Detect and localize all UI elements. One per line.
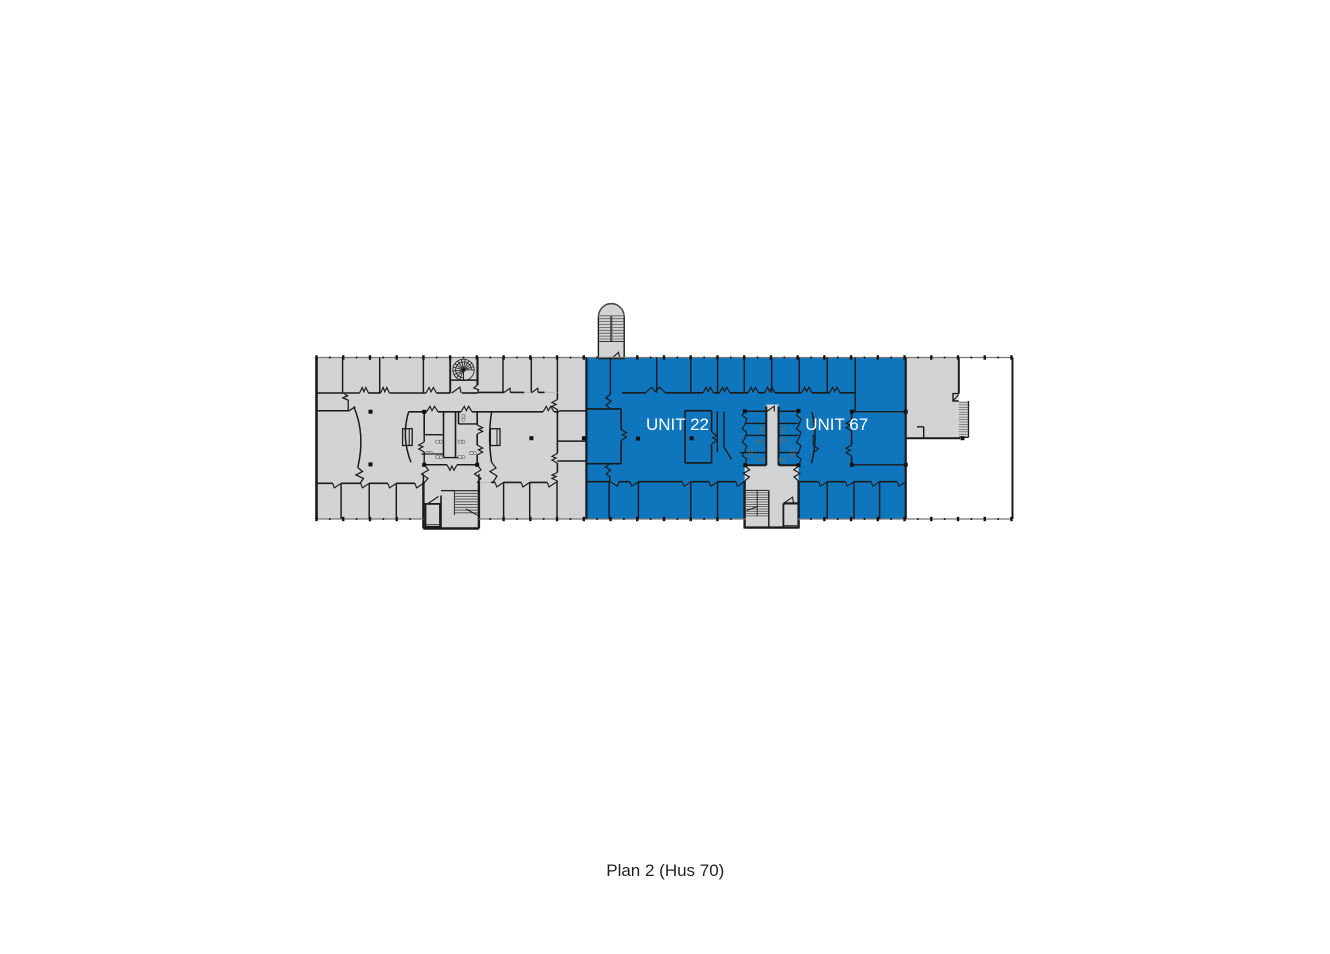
svg-text:UNIT 67: UNIT 67 <box>805 415 868 434</box>
svg-text:Plan 2 (Hus 70): Plan 2 (Hus 70) <box>606 861 724 880</box>
svg-text:UNIT 22: UNIT 22 <box>646 415 709 434</box>
